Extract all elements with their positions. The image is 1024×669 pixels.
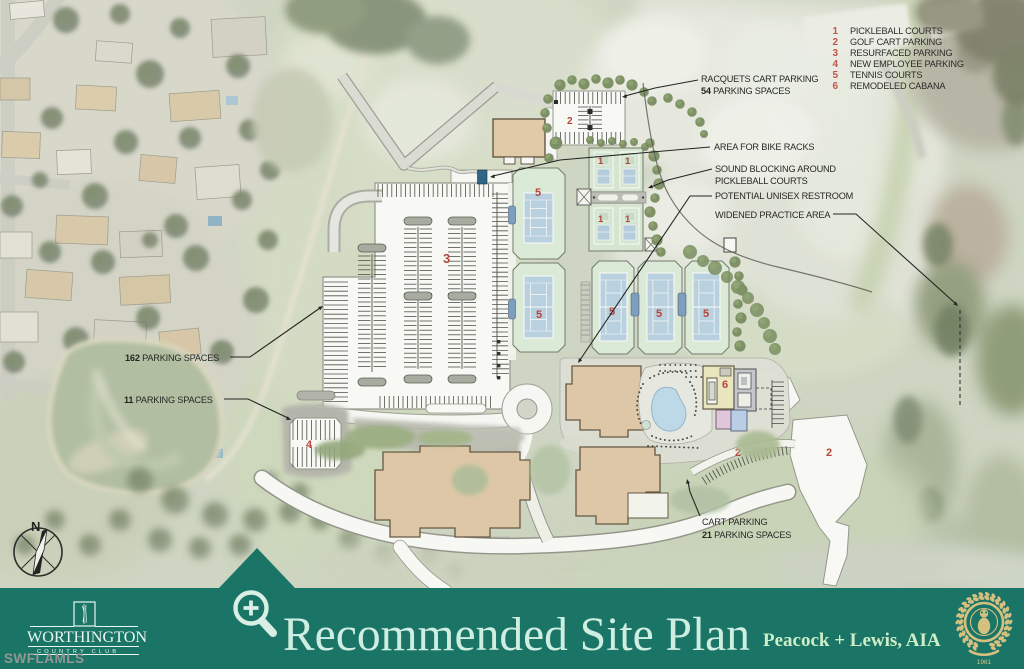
svg-text:1961: 1961 <box>977 659 992 666</box>
svg-text:SWFLAMLS: SWFLAMLS <box>4 651 85 666</box>
svg-text:Recommended Site Plan: Recommended Site Plan <box>283 609 750 661</box>
svg-text:WORTHINGTON: WORTHINGTON <box>27 628 147 646</box>
svg-text:Peacock + Lewis, AIA: Peacock + Lewis, AIA <box>763 630 941 651</box>
